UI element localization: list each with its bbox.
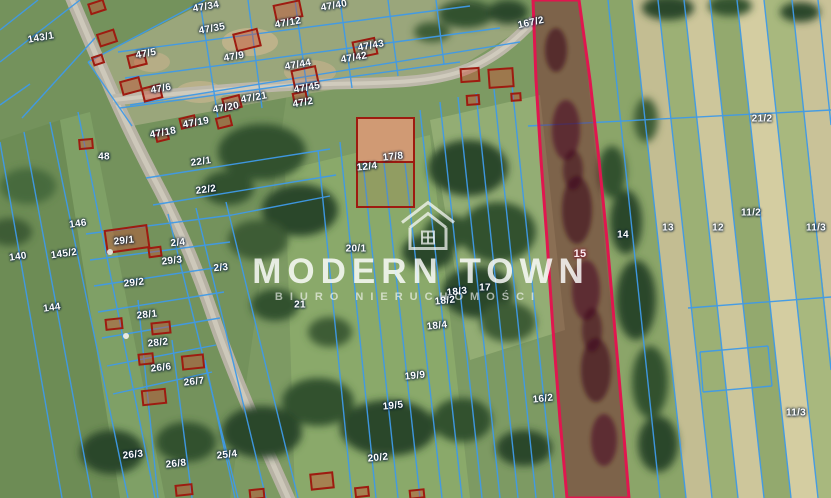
map-detail-dot: [107, 249, 113, 255]
map-viewport[interactable]: 143/147/3447/3547/4047/1247/547/947/4347…: [0, 0, 831, 498]
map-detail-dot: [123, 333, 129, 339]
aerial-imagery: [0, 0, 831, 498]
